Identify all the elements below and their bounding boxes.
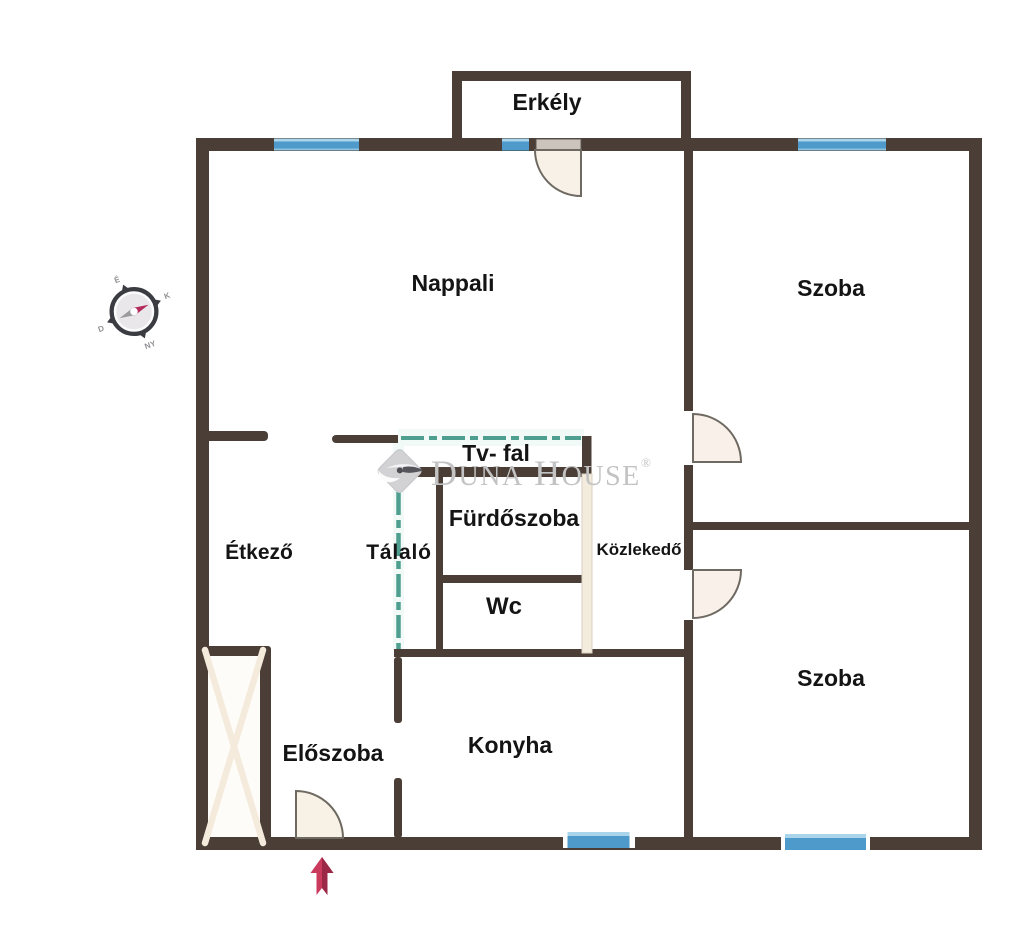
svg-text:Szoba: Szoba <box>797 275 865 301</box>
svg-text:Wc: Wc <box>486 593 522 620</box>
svg-text:Erkély: Erkély <box>512 89 581 115</box>
svg-text:Konyha: Konyha <box>468 732 553 758</box>
svg-text:Étkező: Étkező <box>225 541 293 564</box>
svg-text:®: ® <box>641 455 651 470</box>
svg-text:Fürdőszoba: Fürdőszoba <box>449 505 580 531</box>
svg-text:Szoba: Szoba <box>797 665 865 691</box>
svg-text:Tálaló: Tálaló <box>366 541 431 564</box>
svg-text:Közlekedő: Közlekedő <box>596 540 681 559</box>
svg-text:Előszoba: Előszoba <box>283 740 384 766</box>
svg-text:Tv- fal: Tv- fal <box>462 440 530 466</box>
svg-text:Nappali: Nappali <box>411 270 494 296</box>
